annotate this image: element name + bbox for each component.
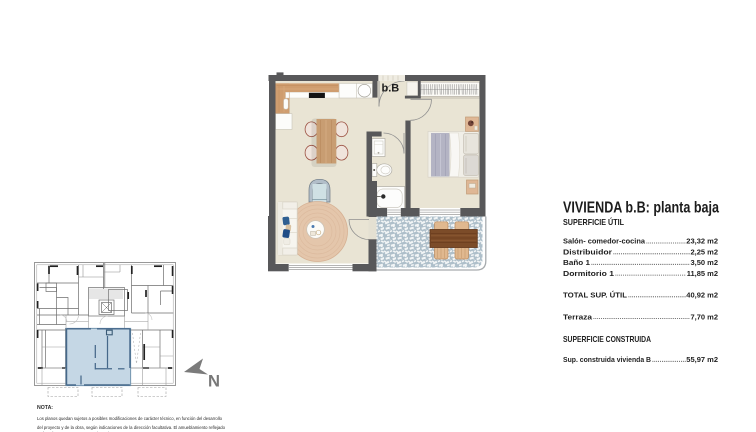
svg-text:NOTA:: NOTA: (37, 405, 53, 411)
svg-text:Los planos quedan sujetos a po: Los planos quedan sujetos a posibles mod… (37, 416, 223, 421)
svg-text:Terraza: Terraza (563, 312, 593, 321)
svg-text:Sup. construida vivienda B: Sup. construida vivienda B (563, 355, 652, 364)
svg-text:Salón- comedor-cocina: Salón- comedor-cocina (563, 237, 646, 246)
svg-text:del proyecto y de la obra, seg: del proyecto y de la obra, según indicac… (37, 425, 226, 430)
svg-text:b.B: b.B (382, 83, 400, 95)
svg-text:Baño 1: Baño 1 (563, 258, 590, 267)
svg-text:SUPERFICIE CONSTRUIDA: SUPERFICIE CONSTRUIDA (563, 334, 651, 344)
svg-text:7,70 m2: 7,70 m2 (690, 312, 718, 321)
svg-text:11,85 m2: 11,85 m2 (687, 269, 718, 278)
svg-text:55,97 m2: 55,97 m2 (686, 355, 718, 364)
svg-text:Distribuidor: Distribuidor (563, 248, 612, 257)
svg-text:Dormitorio 1: Dormitorio 1 (563, 269, 614, 278)
svg-text:N: N (208, 373, 220, 391)
svg-text:23,32 m2: 23,32 m2 (686, 237, 718, 246)
svg-text:2,25 m2: 2,25 m2 (690, 248, 718, 257)
svg-text:3,50 m2: 3,50 m2 (690, 258, 718, 267)
svg-text:TOTAL SUP. ÚTIL: TOTAL SUP. ÚTIL (563, 291, 627, 300)
svg-text:VIVIENDA b.B: planta baja: VIVIENDA b.B: planta baja (563, 200, 719, 217)
svg-text:40,92 m2: 40,92 m2 (686, 291, 718, 300)
svg-text:SUPERFICIE ÚTIL: SUPERFICIE ÚTIL (563, 216, 624, 227)
